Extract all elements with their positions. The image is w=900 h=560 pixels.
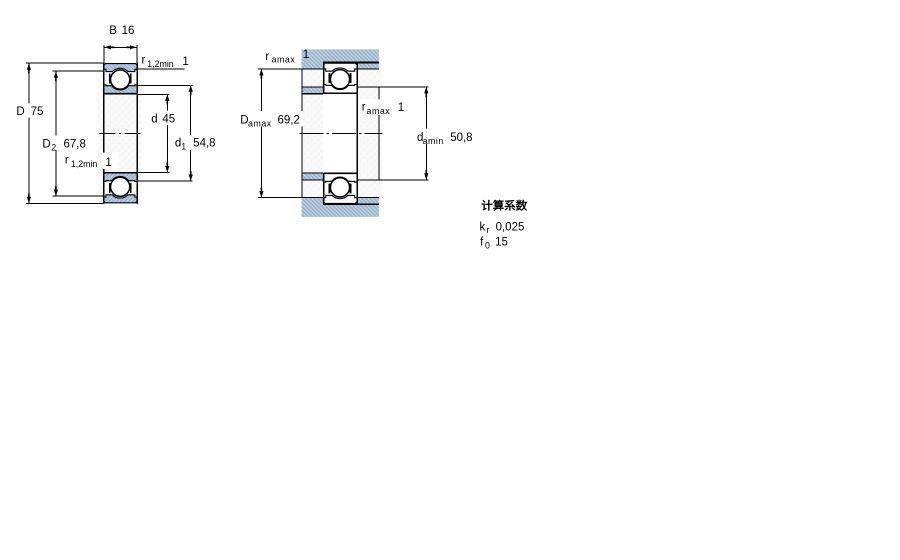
svg-text:1: 1 (105, 157, 111, 169)
svg-text:0: 0 (485, 240, 490, 250)
svg-text:1: 1 (303, 49, 309, 61)
svg-text:D75: D75 (16, 106, 43, 118)
svg-text:d45: d45 (151, 113, 175, 125)
svg-text:r: r (65, 155, 69, 167)
svg-text:amax: amax (248, 118, 272, 128)
svg-text:r: r (486, 225, 489, 235)
svg-text:r: r (362, 101, 366, 113)
svg-text:amax: amax (367, 106, 391, 116)
svg-text:1,2min: 1,2min (71, 159, 98, 169)
svg-text:15: 15 (495, 237, 508, 249)
svg-text:1,2min: 1,2min (147, 59, 174, 69)
svg-text:r: r (142, 55, 146, 67)
svg-text:k: k (480, 221, 486, 233)
svg-text:amin: amin (423, 136, 444, 146)
svg-text:1: 1 (181, 141, 186, 151)
svg-text:B16: B16 (109, 25, 134, 37)
svg-text:r: r (265, 51, 269, 63)
svg-text:amax: amax (272, 55, 296, 65)
svg-text:1: 1 (182, 56, 188, 68)
svg-text:2: 2 (51, 142, 56, 152)
svg-text:0,025: 0,025 (496, 221, 525, 233)
svg-text:1: 1 (398, 102, 404, 114)
svg-text:D67,8: D67,8 (42, 138, 85, 150)
